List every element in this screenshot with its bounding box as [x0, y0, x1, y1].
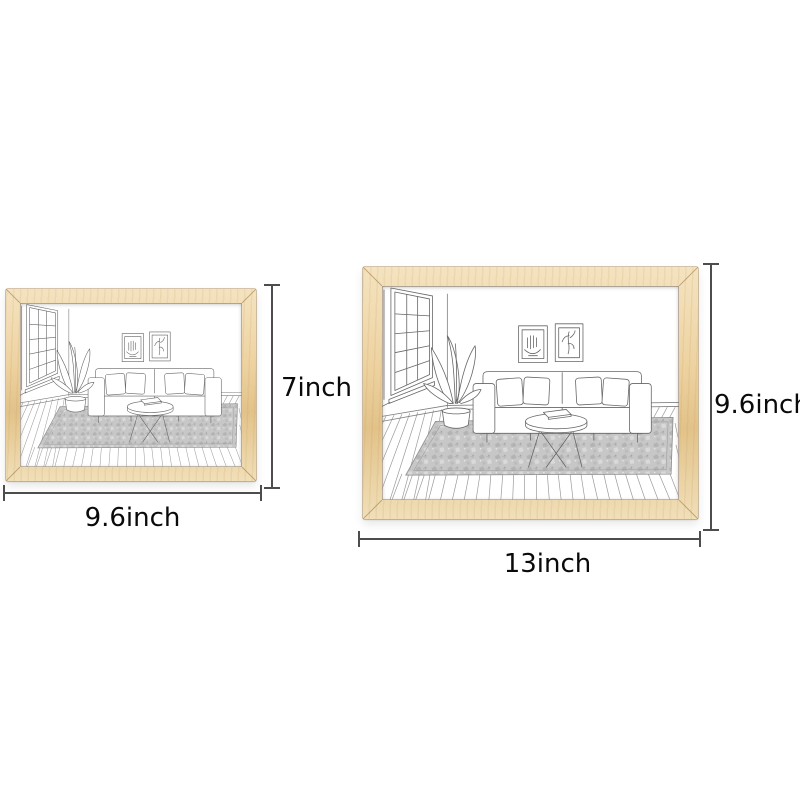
large-frame-width-label: 13inch — [380, 550, 715, 579]
large-frame-width-dimension-line — [358, 538, 701, 540]
frame-miter-seam — [6, 289, 20, 303]
large-frame-height-label: 9.6inch — [714, 391, 800, 420]
living-room-sketch — [20, 303, 242, 467]
small-frame — [6, 289, 256, 481]
large-frame — [363, 267, 698, 519]
frame-miter-seam — [6, 467, 20, 481]
frame-miter-seam — [363, 500, 382, 519]
frame-miter-seam — [363, 267, 382, 286]
small-frame-width-dimension-line — [3, 492, 262, 494]
small-frame-height-dimension-line — [271, 284, 273, 489]
large-frame-height-dimension-line — [710, 263, 712, 531]
living-room-sketch — [382, 286, 679, 500]
small-frame-width-label: 9.6inch — [10, 504, 255, 533]
frame-miter-seam — [679, 267, 698, 286]
small-frame-height-label: 7inch — [281, 374, 352, 403]
product-size-diagram: 7inch 9.6inch 9.6inch 13inch — [0, 0, 800, 800]
small-frame-artwork — [20, 303, 242, 467]
frame-miter-seam — [242, 289, 256, 303]
frame-miter-seam — [679, 500, 698, 519]
frame-miter-seam — [242, 467, 256, 481]
large-frame-artwork — [382, 286, 679, 500]
